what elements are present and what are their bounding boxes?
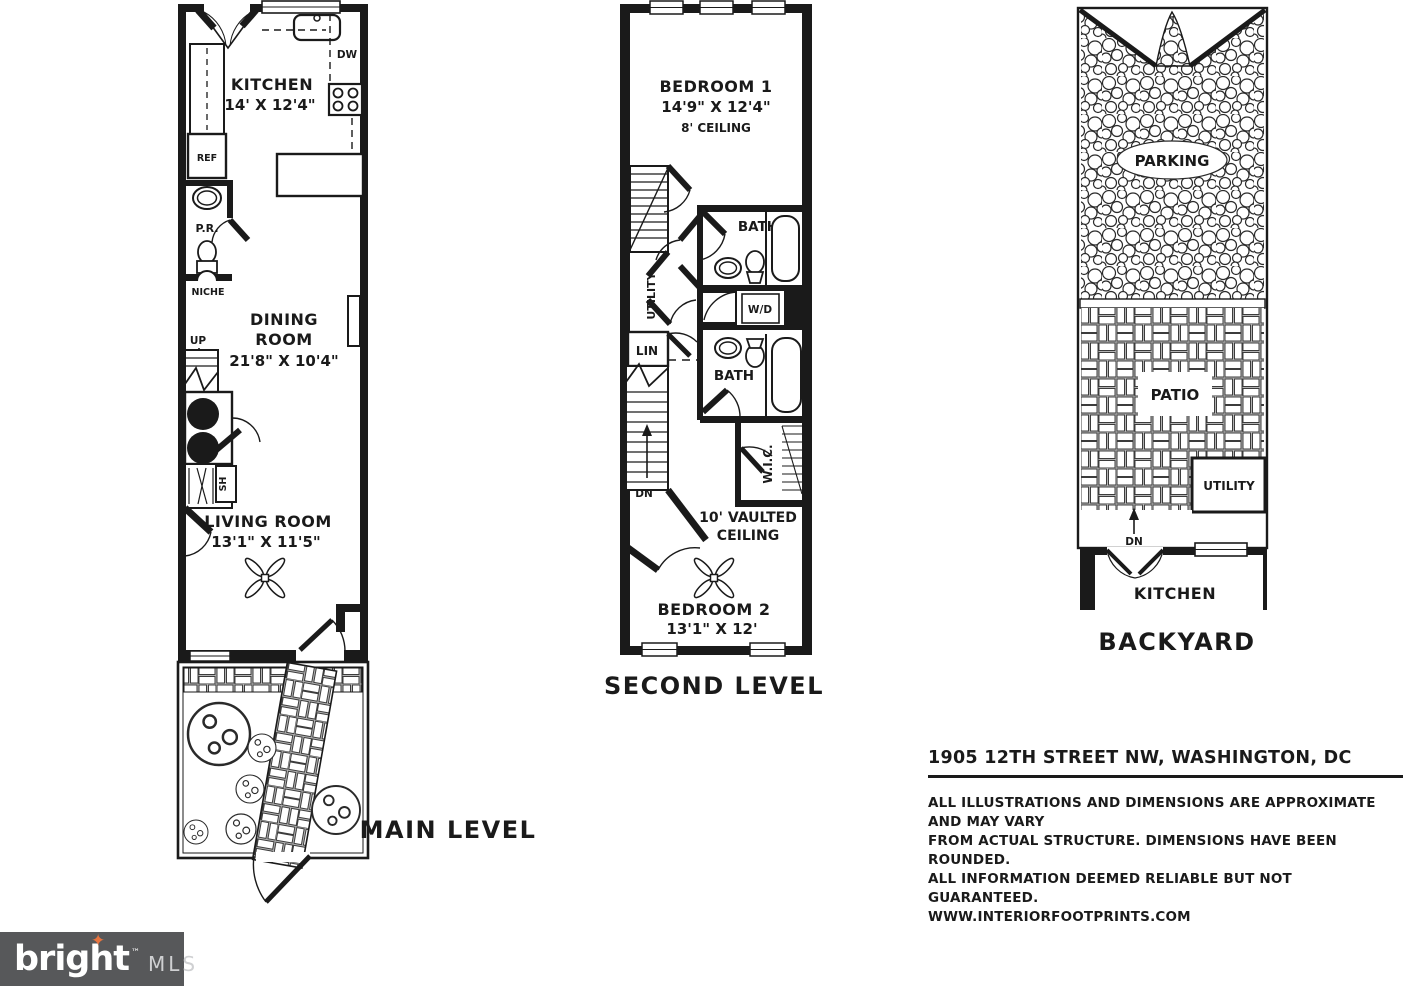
dn-label-yard: DN xyxy=(1125,536,1143,548)
tree xyxy=(226,814,256,844)
disclaimer-line: FROM ACTUAL STRUCTURE. DIMENSIONS HAVE B… xyxy=(928,832,1403,870)
pr-toilet xyxy=(198,241,216,263)
main-level-title: MAIN LEVEL xyxy=(360,816,537,844)
fence-line xyxy=(1080,299,1265,308)
tree xyxy=(248,734,276,762)
niche-label: NICHE xyxy=(192,287,225,298)
second-level-title: SECOND LEVEL xyxy=(604,672,824,700)
footer-block: 1905 12TH STREET NW, WASHINGTON, DC ALL … xyxy=(928,748,1403,927)
utility-label-yard: UTILITY xyxy=(1203,479,1255,493)
bath1-tub xyxy=(772,216,799,281)
patio-label: PATIO xyxy=(1151,386,1200,404)
lin-label: LIN xyxy=(636,344,658,358)
pr-label: P.R. xyxy=(195,222,218,235)
bedroom2-label: BEDROOM 2 xyxy=(657,600,770,619)
bedroom1-dims: 14'9" X 12'4" xyxy=(661,98,770,116)
tree xyxy=(312,786,360,834)
bedroom1-ceiling: 8' CEILING xyxy=(681,121,751,135)
dn-label-2f: DN xyxy=(635,488,653,500)
vaulted-label-2: CEILING xyxy=(717,528,779,544)
dw-label: DW xyxy=(337,49,358,61)
kitchen-peninsula xyxy=(277,154,363,196)
vaulted-label-1: 10' VAULTED xyxy=(699,510,797,526)
disclaimer: ALL ILLUSTRATIONS AND DIMENSIONS ARE APP… xyxy=(928,794,1403,927)
wic-label: W.I.C. xyxy=(761,444,775,483)
dining-dims: 21'8" X 10'4" xyxy=(229,352,338,370)
ceiling-fan-bedroom2 xyxy=(692,556,736,600)
logo-wordmark: bright✦ xyxy=(14,942,129,977)
parking-label: PARKING xyxy=(1135,152,1210,170)
living-dims: 13'1" X 11'5" xyxy=(211,533,320,551)
bedroom2-dims: 13'1" X 12' xyxy=(666,620,757,638)
backyard-title: BACKYARD xyxy=(1098,628,1255,656)
logo-mls-text: MLS xyxy=(148,952,198,976)
sh-label: SH xyxy=(218,477,229,492)
bedroom1-windows xyxy=(650,1,785,14)
logo-brand-text: bright xyxy=(14,939,129,979)
bath2-tub xyxy=(772,338,801,412)
bath2-label: BATH xyxy=(714,368,754,384)
kitchen-dims: 14' X 12'4" xyxy=(224,96,315,114)
utility-label-2f: UTILITY xyxy=(645,271,658,319)
main-level-plan: DW REF KITCHEN 14' X 12'4" P.R. NICHE DI… xyxy=(178,1,536,902)
ref-label: REF xyxy=(197,153,217,164)
disclaimer-line: WWW.INTERIORFOOTPRINTS.COM xyxy=(928,908,1403,927)
bedroom1-label: BEDROOM 1 xyxy=(659,77,772,96)
floorplan-sheet: DW REF KITCHEN 14' X 12'4" P.R. NICHE DI… xyxy=(0,0,1403,986)
star-icon: ✦ xyxy=(91,933,105,950)
trademark-symbol: ™ xyxy=(131,948,140,958)
up-label: UP xyxy=(190,335,207,347)
backyard-plan: PARKING PATIO UTILITY DN KITCHEN BACKYAR… xyxy=(1078,8,1267,656)
living-label: LIVING ROOM xyxy=(204,512,332,531)
wd-label: W/D xyxy=(748,304,772,316)
property-address: 1905 12TH STREET NW, WASHINGTON, DC xyxy=(928,748,1403,778)
kitchen-cabinet xyxy=(190,44,224,134)
kitchen-sink xyxy=(294,15,340,40)
bright-mls-logo: bright✦™ MLS xyxy=(0,932,184,986)
bath1-toilet xyxy=(746,251,764,273)
wic-shelving xyxy=(782,426,802,494)
dining-label-1: DINING xyxy=(250,310,318,329)
dining-niche xyxy=(348,296,360,346)
kitchen-label-yard: KITCHEN xyxy=(1134,584,1216,603)
disclaimer-line: ALL INFORMATION DEEMED RELIABLE BUT NOT … xyxy=(928,870,1403,908)
dining-label-2: ROOM xyxy=(255,330,312,349)
second-level-plan: BEDROOM 1 14'9" X 12'4" 8' CEILING UTILI… xyxy=(604,1,824,700)
stove xyxy=(329,84,362,115)
tree xyxy=(184,820,208,844)
disclaimer-line: ALL ILLUSTRATIONS AND DIMENSIONS ARE APP… xyxy=(928,794,1403,832)
tree xyxy=(236,775,264,803)
kitchen-label: KITCHEN xyxy=(231,75,313,94)
ceiling-fan-main xyxy=(243,556,287,600)
tree xyxy=(188,703,250,765)
